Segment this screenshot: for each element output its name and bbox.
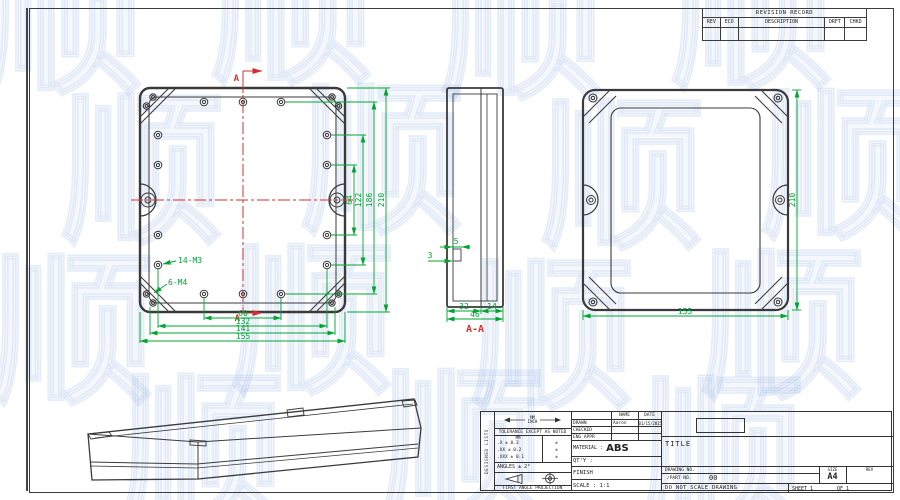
section-title: A-A: [466, 324, 484, 335]
top-view-side-bosses: [583, 185, 788, 215]
revision-table-title: REVISION RECORD: [702, 8, 867, 17]
material-row: MATERIAL : ABS: [573, 440, 661, 456]
drawn-date: 01/15/2015: [639, 421, 662, 426]
tol-row-3: .XXX ± 0.1: [497, 455, 524, 460]
drawn-name: Aaron: [613, 421, 627, 426]
eng-appr-label: ENG APPR: [573, 435, 595, 440]
name-header: NAME: [611, 413, 638, 418]
angles-tolerance: ANGLES ± 2°: [497, 463, 571, 472]
revision-table-empty-row: [702, 27, 867, 41]
qty-label: QT'Y :: [573, 458, 593, 464]
title-block: DESIGNED LISTS MM INCH TOLERANCE EXCEPT …: [480, 411, 892, 491]
projection-label: FIRST ANGLE PROJECTION: [494, 486, 571, 492]
section-label-top: A: [234, 74, 240, 84]
tol-row-1: .X ± 0.3: [497, 441, 519, 446]
sheet-of-label: OF 1: [837, 486, 849, 492]
dim-64: 64: [345, 195, 354, 205]
arrow-right-icon: [539, 416, 561, 424]
no-scale-note: DO NOT SCALE DRAWING: [665, 485, 737, 491]
drawn-label: DRAWN: [573, 421, 587, 426]
m4-callout: 6-M4: [168, 278, 187, 287]
dim-210-left-view: 210: [377, 193, 386, 208]
front-view: A A 14-M3 6-M4: [131, 71, 390, 343]
revision-table: REVISION RECORD REV ECO DESCRIPTION DRFT…: [702, 8, 867, 41]
material-label: MATERIAL :: [573, 445, 603, 451]
units-inch: INCH: [528, 420, 538, 425]
target-symbol-icon: [537, 472, 563, 485]
dim-210: 210: [788, 193, 797, 208]
size-value: A4: [819, 472, 846, 482]
checked-label: CHECKED: [573, 428, 592, 433]
part-no-label: /PART NO.: [667, 476, 691, 481]
rev-col-header: REV: [703, 18, 721, 27]
hole-callouts: 14-M3 6-M4: [154, 256, 202, 293]
cone-symbol-icon: [503, 473, 529, 485]
scale-label: SCALE : 1:1: [573, 483, 609, 489]
dim-32: 32: [459, 302, 469, 311]
material-value: ABS: [606, 443, 629, 454]
dim-3: 3: [428, 251, 433, 260]
revision-table-header: REV ECO DESCRIPTION DRFT CHKD: [702, 17, 867, 27]
part-no-value: 00: [709, 474, 717, 482]
drft-col-header: DRFT: [825, 18, 845, 27]
dim-155: 155: [236, 332, 251, 341]
dim-14: 14: [487, 302, 497, 311]
title-block-side-strip: DESIGNED LISTS: [481, 412, 495, 490]
finish-label: FINISH: [573, 470, 593, 476]
isometric-view: [88, 399, 421, 480]
title-label: TITLE: [665, 440, 691, 448]
tol-row-2: .XX ± 0.2: [497, 448, 521, 453]
date-header: DATE: [638, 413, 661, 418]
dim-122: 122: [354, 193, 363, 208]
dim-46: 46: [470, 310, 480, 319]
side-strip-label: DESIGNED LISTS: [485, 429, 490, 474]
arrow-left-icon: [504, 416, 526, 424]
logo-box: [696, 418, 745, 433]
description-col-header: DESCRIPTION: [739, 18, 826, 27]
eco-col-header: ECO: [721, 18, 739, 27]
projection-symbols: [494, 472, 571, 485]
top-view: 210 155: [583, 90, 801, 320]
drawing-sheet: 顺 顺 顺 顺 顺 顺 顺 顺 顺 顺 顺 顺 顺 顺 顺: [0, 0, 900, 500]
section-marker-top: A: [234, 71, 262, 93]
units-row: MM INCH: [494, 412, 571, 428]
dim-186: 186: [365, 193, 374, 208]
tolerance-table: MM .X ± 0.3 .XX ± 0.2 .XXX ± 0.1 ± ± ±: [494, 435, 571, 462]
chkd-col-header: CHKD: [845, 18, 866, 27]
section-dims: 5 3 32 14 46: [428, 237, 503, 322]
centerlines: [131, 80, 356, 306]
rev-label: REV: [846, 467, 893, 472]
sheet-label: SHEET 1: [792, 486, 813, 492]
section-view: 5 3 32 14 46 A-A: [428, 88, 503, 335]
top-view-dims: 210 155: [583, 90, 801, 320]
dim-5: 5: [454, 237, 459, 246]
m3-callout: 14-M3: [178, 256, 202, 265]
dim-155-top-view: 155: [678, 307, 693, 316]
drawing-no-label: DRAWING NO.: [665, 468, 695, 473]
